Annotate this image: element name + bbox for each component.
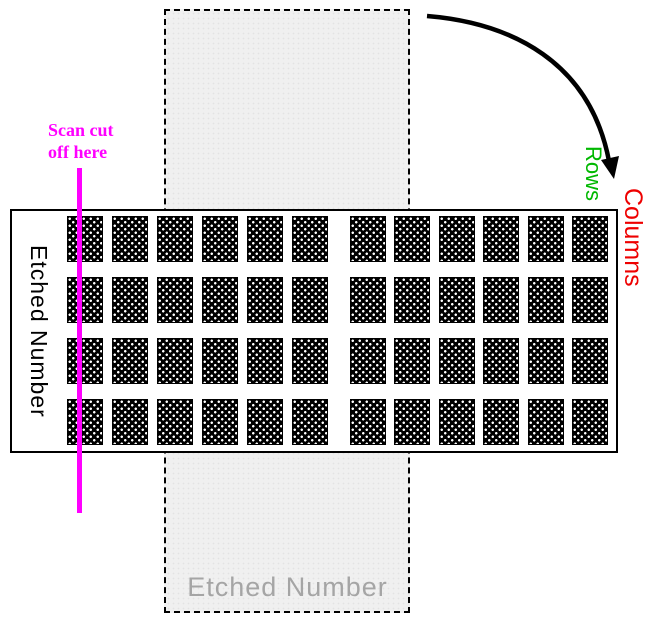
sample-pad [483, 216, 519, 262]
sample-pad [157, 277, 193, 323]
scan-cutoff-note-line2: off here [48, 141, 114, 163]
sample-pad [292, 338, 328, 384]
scan-cutoff-note-line1: Scan cut [48, 119, 114, 141]
sample-pad [112, 216, 148, 262]
sample-pad [112, 338, 148, 384]
sample-pad [112, 277, 148, 323]
sample-pad [394, 277, 430, 323]
etched-region-label: Etched Number [165, 572, 410, 603]
sample-pad [528, 338, 564, 384]
sample-pad [202, 338, 238, 384]
sample-pad [247, 277, 283, 323]
sample-pad [67, 216, 103, 262]
sample-pad [67, 399, 103, 445]
sample-pad [202, 216, 238, 262]
sample-pad [157, 216, 193, 262]
sample-pad [292, 216, 328, 262]
sample-pad [572, 216, 608, 262]
sample-pad [483, 338, 519, 384]
sample-pad [350, 399, 386, 445]
sample-pad [67, 277, 103, 323]
sample-pad [247, 338, 283, 384]
sample-pad [157, 338, 193, 384]
sample-pad [67, 338, 103, 384]
sample-pad [528, 277, 564, 323]
sample-pad [439, 277, 475, 323]
sample-pad [202, 277, 238, 323]
sample-pad [292, 399, 328, 445]
sample-pad [572, 399, 608, 445]
sample-pad [394, 216, 430, 262]
sample-pad [483, 277, 519, 323]
rows-label: Rows [580, 146, 606, 201]
slide-label: Etched Number [20, 209, 52, 453]
sample-pad [247, 399, 283, 445]
sample-pad [394, 399, 430, 445]
sample-pad [528, 399, 564, 445]
sample-pad [157, 399, 193, 445]
columns-label: Columns [618, 188, 647, 287]
sample-pad [350, 216, 386, 262]
sample-pad [292, 277, 328, 323]
sample-pad [247, 216, 283, 262]
sample-pad [439, 216, 475, 262]
sample-pad [483, 399, 519, 445]
scan-layout-diagram: Etched Number Etched Number Scan cut off… [0, 0, 660, 624]
scan-cutoff-line [77, 168, 82, 513]
sample-pad [350, 277, 386, 323]
sample-pad [439, 338, 475, 384]
sample-pad [572, 338, 608, 384]
sample-pad [528, 216, 564, 262]
sample-pad [112, 399, 148, 445]
scan-cutoff-note: Scan cut off here [48, 119, 114, 163]
sample-pad [394, 338, 430, 384]
sample-pad [350, 338, 386, 384]
sample-pad [572, 277, 608, 323]
sample-pad [439, 399, 475, 445]
sample-pad [202, 399, 238, 445]
